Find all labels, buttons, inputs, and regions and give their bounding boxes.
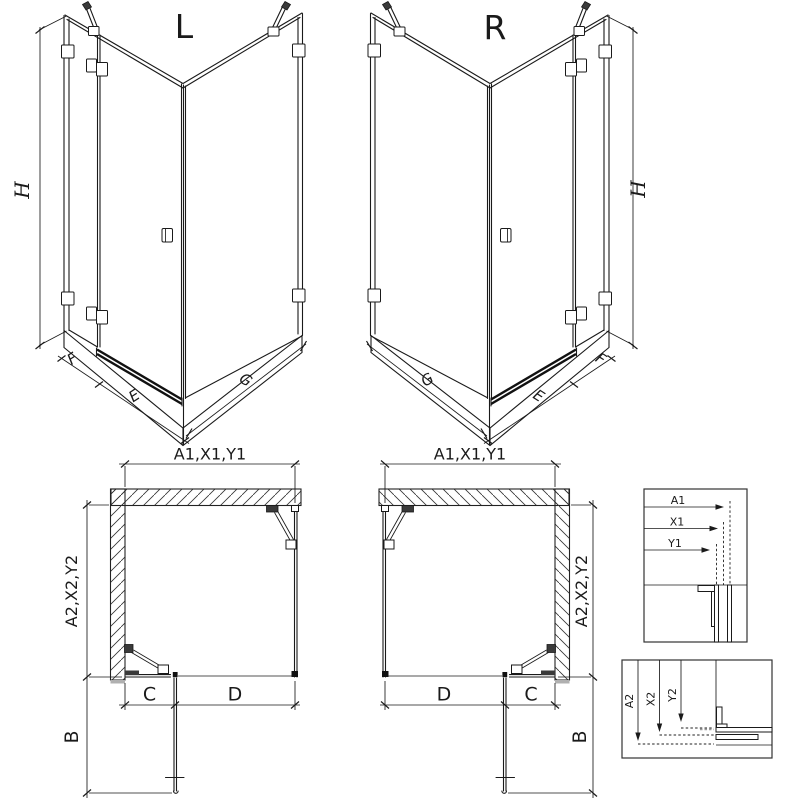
plan-left-d-label: D: [228, 684, 243, 706]
variant-label-left: L: [175, 7, 194, 46]
door-width-label-right: E: [530, 386, 548, 407]
plan-right-geometry: [379, 461, 597, 799]
plan-left-geometry: [83, 461, 301, 799]
variant-label-right: R: [484, 8, 507, 47]
detail-a1-label: A1: [671, 494, 686, 507]
plan-left-c-label: C: [143, 684, 156, 706]
detail-x2-label: X2: [645, 692, 658, 707]
view-3d-left-geometry: [36, 2, 307, 446]
plan-right-width-label: A1,X1,Y1: [434, 445, 506, 464]
shower-enclosure-drawing: L R H H F E G G E F A1,X1,Y1 A2,X2,Y2 B …: [0, 0, 800, 800]
view-3d-right-geometry: [367, 2, 638, 446]
plan-right-c-label: C: [524, 684, 537, 706]
detail-y2-label: Y2: [666, 688, 679, 703]
side-width-label-left: G: [236, 369, 256, 390]
detail-x1-label: X1: [670, 516, 685, 529]
plan-right-door-swing-label: B: [569, 730, 591, 743]
detail-a2-label: A2: [623, 694, 636, 709]
height-label-right: H: [626, 180, 650, 199]
detail-y1-label: Y1: [667, 537, 682, 550]
plan-right-d-label: D: [437, 684, 452, 706]
height-label-left: H: [10, 181, 34, 200]
fixed-width-label-right: F: [592, 349, 609, 369]
plan-left-depth-label: A2,X2,Y2: [62, 555, 81, 627]
technical-drawing-page: L R H H F E G G E F A1,X1,Y1 A2,X2,Y2 B …: [0, 0, 800, 800]
fixed-width-label-left: F: [64, 349, 81, 369]
plan-left-width-label: A1,X1,Y1: [174, 445, 246, 464]
side-width-label-right: G: [418, 369, 438, 390]
plan-right-depth-label: A2,X2,Y2: [572, 555, 591, 627]
detail-box-depth: [622, 660, 772, 758]
plan-left-door-swing-label: B: [61, 730, 83, 743]
detail-box-width: [644, 489, 747, 642]
